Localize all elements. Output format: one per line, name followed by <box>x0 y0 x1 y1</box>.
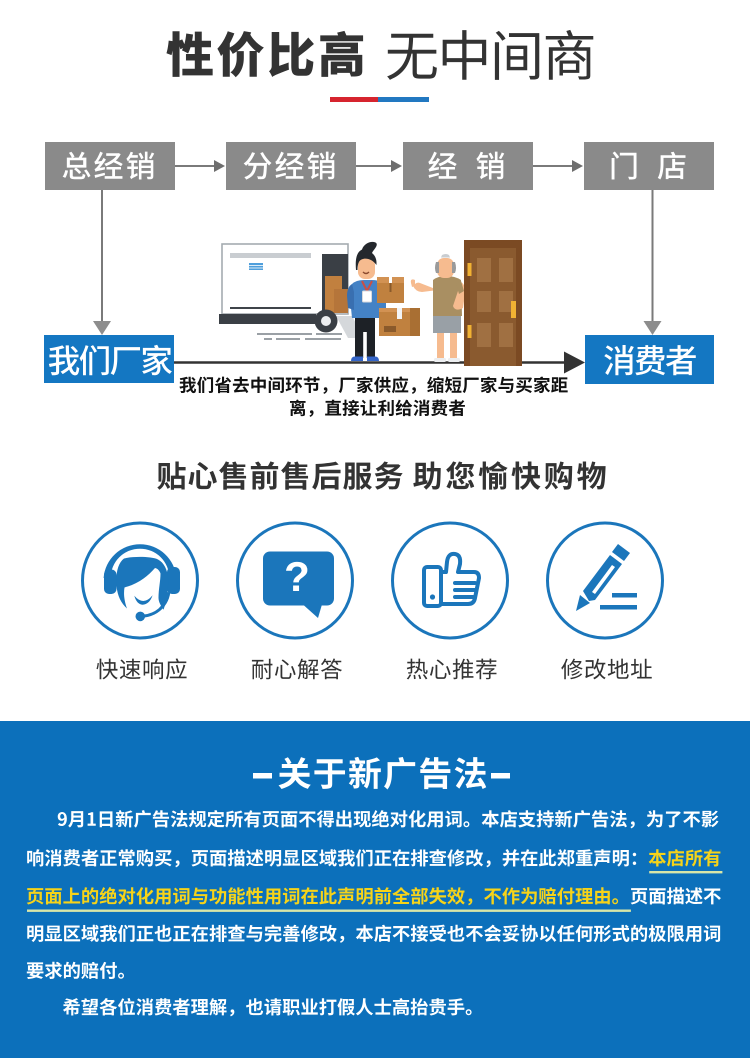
svg-text:?: ? <box>284 553 310 600</box>
